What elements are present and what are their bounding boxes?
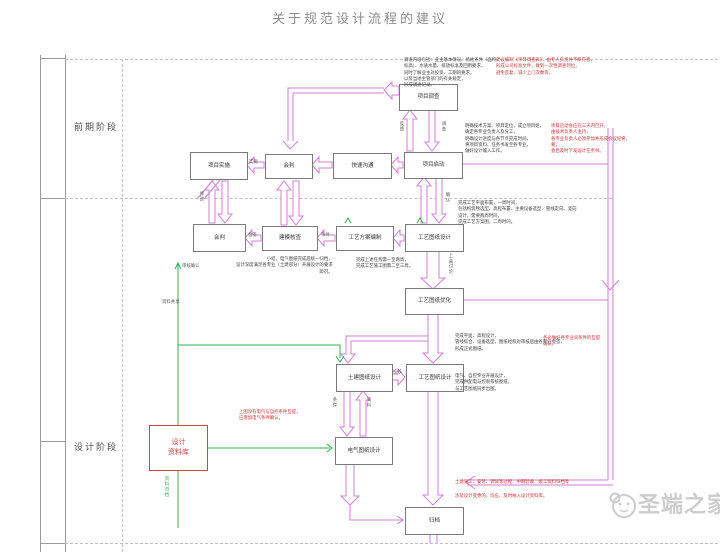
box-project-implementation: 项目实施 <box>190 152 248 180</box>
annotation-drawings-red: 务必做好各专业间条件的互提 确认。 <box>543 335 600 348</box>
label-meeting-discuss: 上会讨论 <box>448 253 454 275</box>
label-feedback: 反馈 <box>399 121 405 132</box>
label-countersign: 会签 <box>248 232 257 238</box>
box-electric-drawing-design: 电气图纸设计 <box>335 437 393 465</box>
line-right-feedback-loop <box>608 128 613 480</box>
box-archive: 归档 <box>405 507 464 535</box>
annotation-duration-black: 完成上述任务需一至两周， 完成工艺施工图需二至三周。 <box>356 257 413 270</box>
line-electric-to-archive <box>350 505 403 524</box>
arrowhead-loop-down <box>602 280 619 290</box>
box-design-library: 设计 资料库 <box>149 425 208 471</box>
label-survey: 调查 <box>441 121 447 132</box>
line-library-to-electric <box>205 444 332 452</box>
box-quick-communication: 快速沟通 <box>333 153 392 179</box>
arrow-electric-down <box>341 464 359 505</box>
arrow-processfinal-to-archive <box>423 391 443 505</box>
label-implement: 实施 <box>249 159 258 165</box>
arrow-model-up <box>277 181 291 225</box>
arrow-civil-to-electric <box>340 391 354 436</box>
label-review-confirm: 审核确认 <box>182 263 200 269</box>
label-condition: 条件 <box>321 232 330 238</box>
line-survey-to-meet2 <box>283 88 384 149</box>
watermark-logo <box>606 488 640 527</box>
arrow-impl-down <box>218 181 232 223</box>
label-data-share: 资料共享 <box>162 299 180 305</box>
stage-label-early: 前期阶段 <box>74 120 118 133</box>
arrow-start-to-quick <box>391 157 403 173</box>
arrow-quick-to-meet <box>312 157 332 173</box>
annotation-archive-red-line1: 土建施工、安装、调试等过程、中期验收、竣工资料归档等 <box>455 479 569 485</box>
watermark-text: 圣端之家 <box>638 487 720 519</box>
box-review-meeting-2: 会判 <box>265 154 313 179</box>
label-modify: 修改 <box>199 191 205 202</box>
box-process-drawing-design: 工艺图纸设计 <box>405 224 464 252</box>
flow-connectors <box>0 0 720 552</box>
box-process-scheme: 工艺方案编制 <box>336 226 394 251</box>
annotation-conditions-black: 小结，电气图纸完成后统一归档， 设计深度满足各专业（土建部分）开展设计的要求 即… <box>236 256 333 275</box>
arrow-survey-down <box>425 110 439 151</box>
annotation-archive-red-line2: 涉及设计变更的，均应、及时纳入设计资料库。 <box>455 493 547 499</box>
stage-label-design: 设计阶段 <box>74 440 118 453</box>
label-electric-data: 资料 <box>366 397 372 408</box>
annotation-survey-black: 调查内容包括：业主基本情况、场地条件（面积、 标高）、水质水量、排放标准及回用要… <box>404 57 501 88</box>
annotation-kickoff-red: 项目启动会应在三天内召开， 由技术负责人主持， 各专业负责人必须参加并形成会议纪… <box>551 123 630 154</box>
green-caret-marks <box>345 218 423 223</box>
flowchart-page: 关于规范设计流程的建议 前期阶段 设计阶段 <box>0 0 720 552</box>
box-civil-drawing-design: 土建图纸设计 <box>336 364 393 392</box>
box-model-check: 建模核查 <box>262 226 318 251</box>
box-process-drawing-optimize: 工艺图纸优化 <box>405 288 464 315</box>
box-project-kickoff: 项目启动 <box>404 152 463 179</box>
annotation-electric-red: 上图没有电气与自控条件互提， 应增加电气条件确认。 <box>239 409 300 422</box>
arrow-design-to-optimize <box>421 250 445 289</box>
annotation-scheme-black: 完成工艺平面布置，一周时间， 包括构筑物选型、高程布置、主要设备选型／管线走向、… <box>458 200 577 225</box>
arrow-meet2-down <box>289 181 303 225</box>
line-library-to-civil <box>178 345 344 362</box>
arrow-branch-to-civil <box>341 336 428 363</box>
label-check: 校核 <box>393 369 402 375</box>
arrow-feedback-up <box>403 110 417 151</box>
arrow-designbox-up <box>417 177 431 223</box>
annotation-survey-red: 建议编制《项目调查表》，由专人负责并不断完善， 形成公司标准文件，做到一次性调查… <box>496 57 595 76</box>
arrow-design-to-scheme <box>393 230 404 246</box>
label-data-archive: 资料归档 <box>164 476 170 498</box>
box-review-meeting-3: 会判 <box>193 224 246 252</box>
label-confirm: 确认 <box>445 192 451 203</box>
arrow-survey-left-head <box>384 82 399 99</box>
arrow-start-down <box>432 177 446 223</box>
annotation-electric-black: 电气、自控专业开展设计， 完成供配电与控制系统图纸， 与工艺图纸同步出图。 <box>455 373 512 392</box>
label-electric-condition: 条件 <box>332 397 338 408</box>
annotation-kickoff-black: 明确技术方案、项目定位，成立项目组， 确定各专业负责人及分工， 明确设计进度与各… <box>465 123 544 154</box>
